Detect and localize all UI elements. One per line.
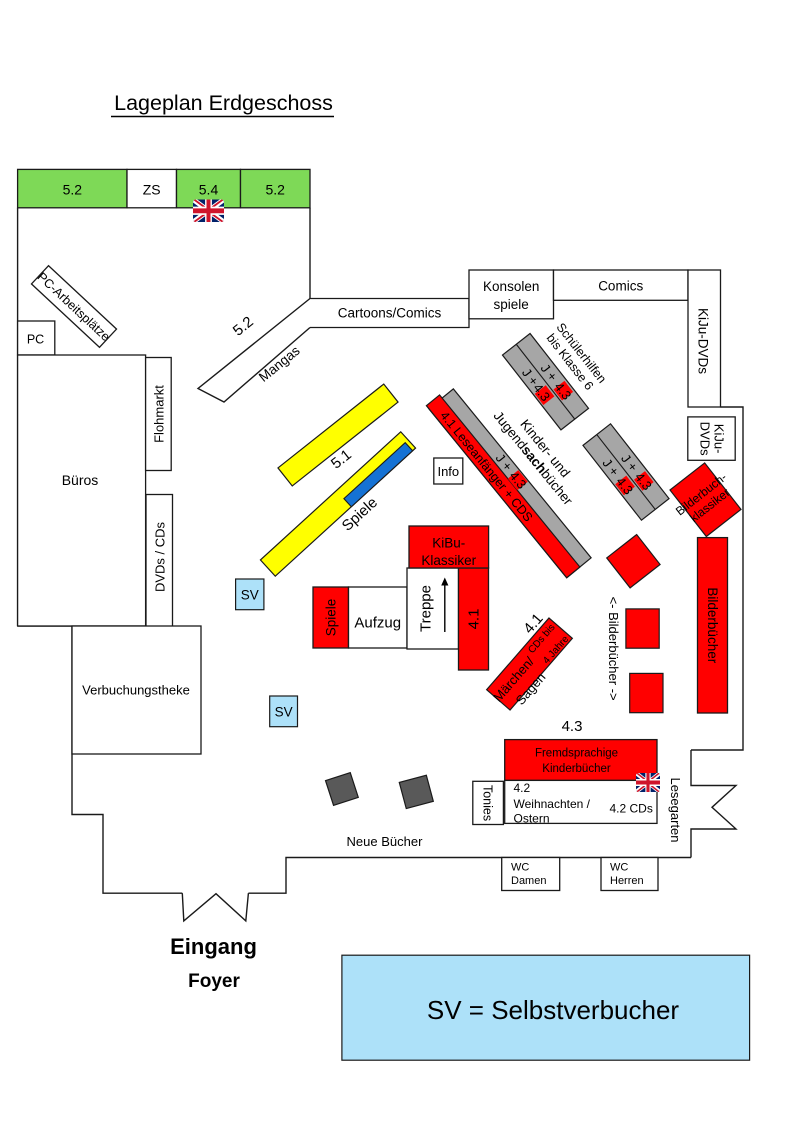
svg-text:SV = Selbstverbucher: SV = Selbstverbucher	[427, 995, 680, 1025]
svg-text:Damen: Damen	[511, 875, 546, 887]
svg-text:DVDs: DVDs	[698, 422, 713, 456]
svg-text:5.2: 5.2	[63, 182, 83, 198]
svg-text:Weihnachten /: Weihnachten /	[514, 797, 591, 811]
svg-text:Neue Bücher: Neue Bücher	[347, 834, 424, 849]
svg-text:Aufzug: Aufzug	[354, 615, 401, 632]
svg-text:KiJu-DVDs: KiJu-DVDs	[696, 308, 711, 374]
svg-text:Herren: Herren	[610, 875, 644, 887]
svg-text:KiBu-: KiBu-	[432, 536, 465, 551]
svg-text:Treppe: Treppe	[418, 585, 435, 632]
svg-text:Eingang: Eingang	[170, 934, 257, 959]
svg-text:5.4: 5.4	[199, 182, 219, 198]
svg-text:ZS: ZS	[143, 182, 161, 198]
svg-text:4.1: 4.1	[466, 609, 483, 630]
svg-text:Kinderbücher: Kinderbücher	[542, 763, 611, 775]
svg-text:Mangas: Mangas	[256, 343, 303, 385]
svg-text:Fremdsprachige: Fremdsprachige	[535, 748, 618, 760]
svg-text:Info: Info	[437, 464, 459, 479]
svg-text:5.2: 5.2	[265, 182, 285, 198]
svg-text:Ostern: Ostern	[514, 812, 550, 826]
svg-text:SV: SV	[275, 705, 293, 720]
svg-text:4.2 CDs: 4.2 CDs	[610, 802, 653, 816]
svg-text:WC: WC	[610, 862, 628, 874]
svg-text:DVDs / CDs: DVDs / CDs	[152, 521, 167, 592]
svg-text:Spiele: Spiele	[324, 599, 339, 637]
svg-text:KiJu-: KiJu-	[712, 424, 727, 454]
svg-text:Tonies: Tonies	[481, 785, 495, 821]
svg-text:SV: SV	[241, 588, 259, 603]
svg-text:Flohmarkt: Flohmarkt	[152, 385, 167, 443]
svg-text:Comics: Comics	[598, 279, 643, 294]
svg-text:<- Bilderbücher ->: <- Bilderbücher ->	[606, 597, 621, 701]
svg-text:Verbuchungstheke: Verbuchungstheke	[82, 683, 190, 698]
svg-text:Cartoons/Comics: Cartoons/Comics	[338, 306, 442, 321]
svg-text:Konsolen: Konsolen	[483, 279, 539, 294]
svg-text:Foyer: Foyer	[188, 971, 240, 992]
svg-text:Lageplan Erdgeschoss: Lageplan Erdgeschoss	[114, 91, 333, 115]
svg-text:Büros: Büros	[62, 472, 99, 488]
svg-text:Klassiker: Klassiker	[421, 553, 476, 568]
svg-text:spiele: spiele	[494, 297, 529, 312]
svg-text:WC: WC	[511, 862, 529, 874]
svg-text:Bilderbücher: Bilderbücher	[705, 587, 720, 663]
svg-text:Lesegarten: Lesegarten	[668, 777, 683, 842]
svg-text:4.2: 4.2	[514, 781, 531, 795]
svg-text:5.2: 5.2	[230, 313, 257, 339]
svg-text:4.3: 4.3	[562, 718, 583, 735]
svg-text:PC: PC	[27, 333, 44, 347]
